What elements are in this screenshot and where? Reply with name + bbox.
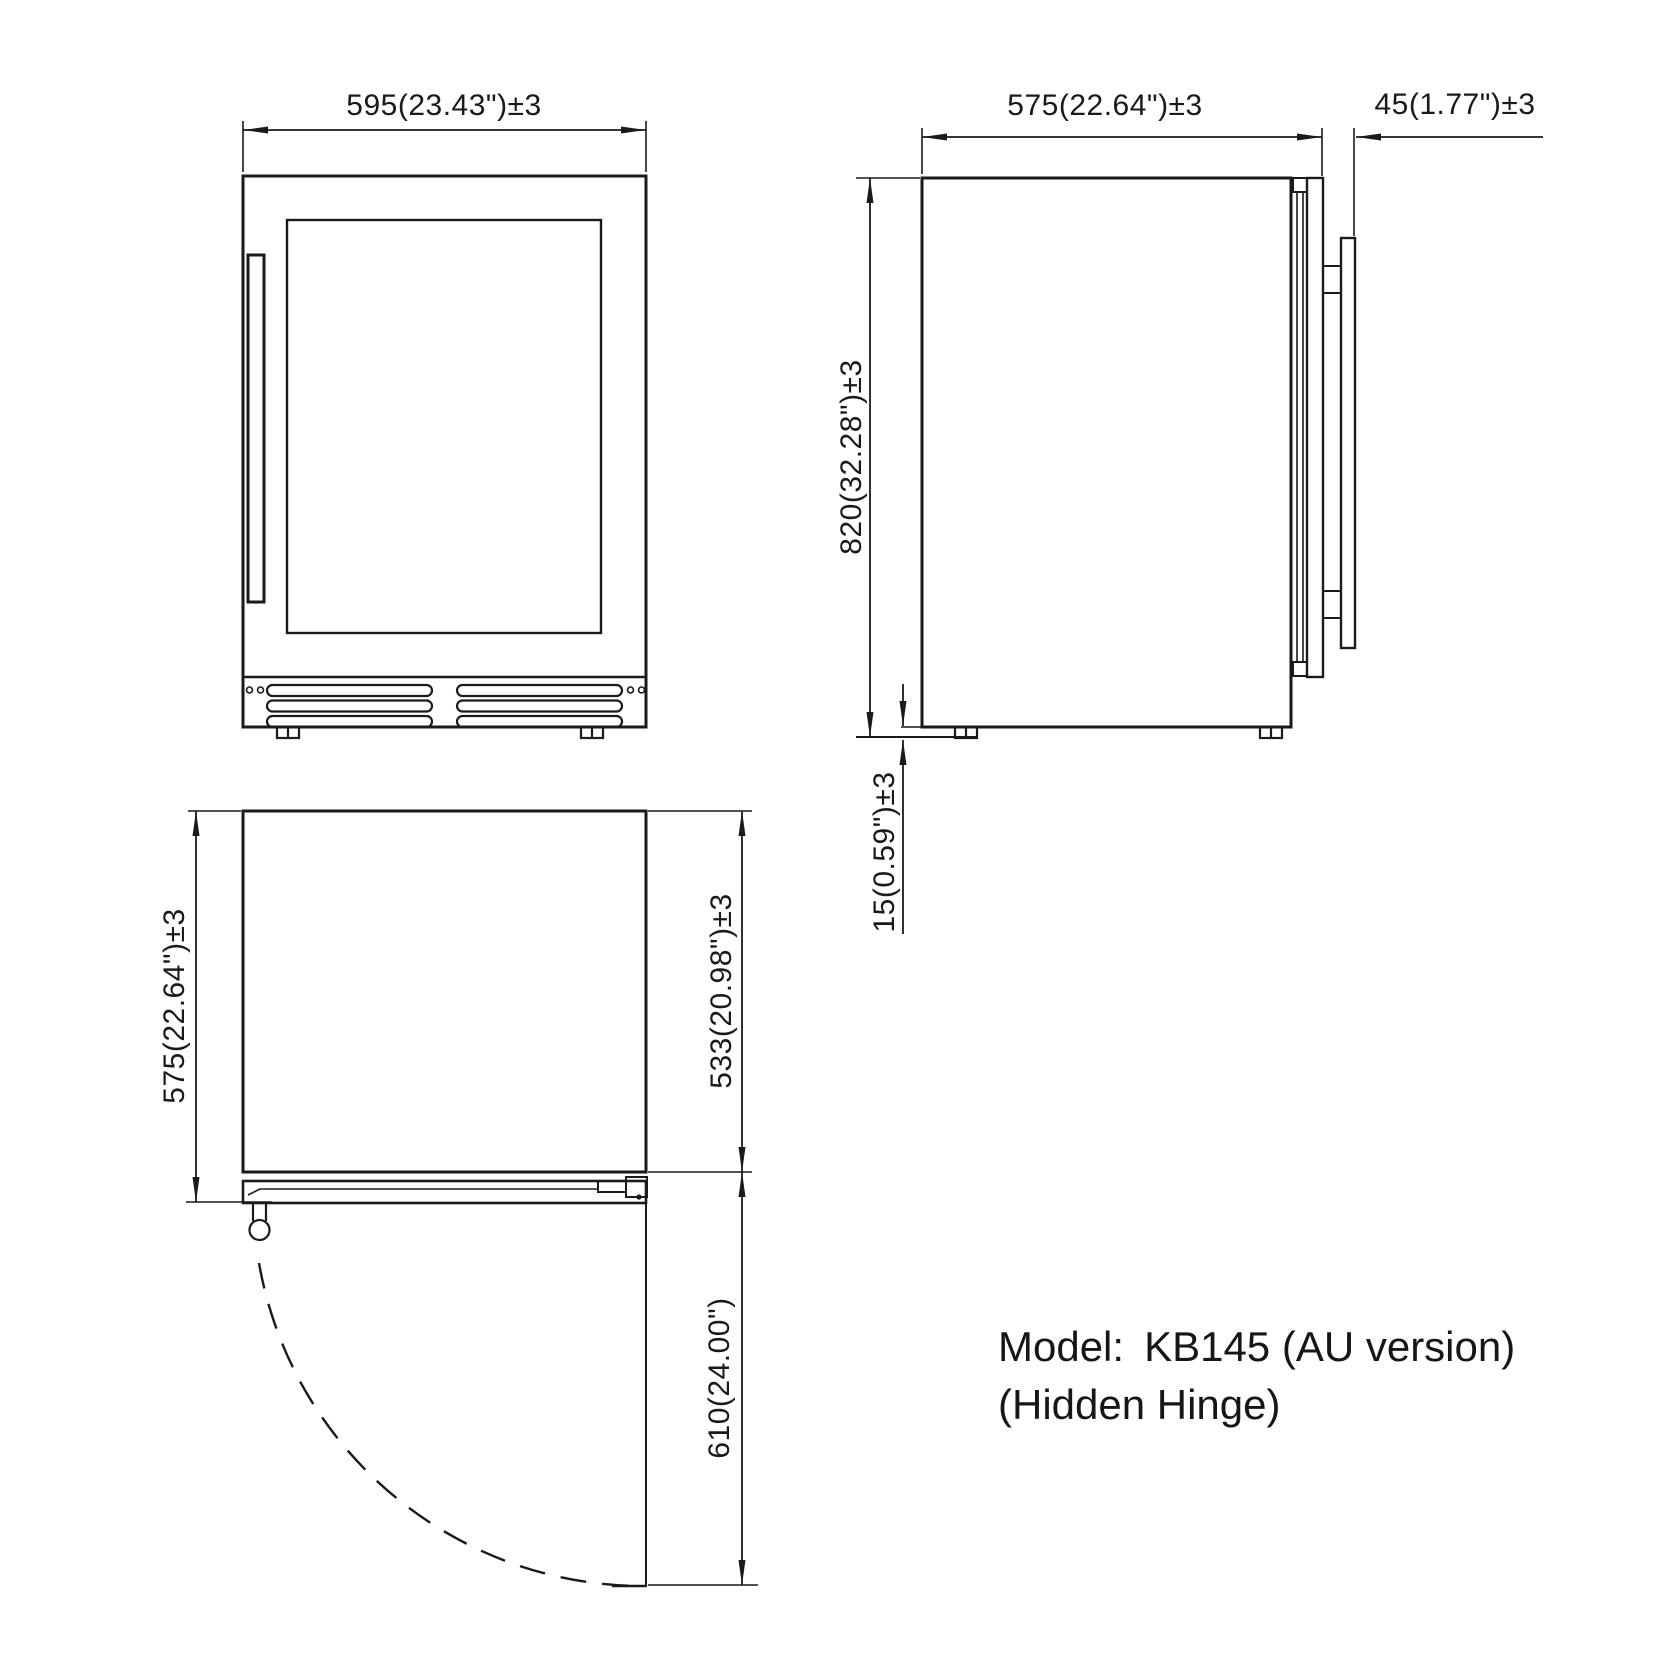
model-label: Model:	[998, 1323, 1124, 1370]
glass-door-panel	[287, 220, 601, 633]
door-top-outline	[243, 1181, 646, 1203]
side-door-thickness-dimension: 45(1.77")±3	[1374, 88, 1535, 122]
model-annotation: Model:KB145 (AU version) (Hidden Hinge)	[998, 1318, 1515, 1434]
vent-slats	[267, 685, 622, 727]
hidden-hinge-step	[598, 1181, 626, 1192]
side-leg-height-dimension: 15(0.59")±3	[868, 771, 902, 932]
model-note: (Hidden Hinge)	[998, 1376, 1515, 1434]
screw	[628, 687, 634, 693]
cabinet-top-outline	[243, 811, 646, 1172]
door-handle	[248, 255, 264, 602]
door-swing-arc	[259, 1263, 640, 1586]
top-cabinet-depth-dimension: 533(20.98")±3	[705, 893, 739, 1088]
door-face-groove-end	[248, 1189, 260, 1195]
handle-knob-top-view	[250, 1220, 270, 1240]
cabinet-front-outline	[243, 176, 646, 727]
door-gasket-cap-top	[1293, 178, 1307, 192]
hinge-arm-top	[1323, 266, 1341, 293]
front-view	[243, 121, 646, 738]
side-height-dimension: 820(32.28")±3	[835, 359, 869, 554]
top-depth-dimension: 575(22.64")±3	[158, 908, 192, 1103]
door-slab-side	[1307, 178, 1323, 677]
screw	[639, 687, 645, 693]
top-view	[186, 811, 758, 1587]
door-gasket-cap-bottom	[1293, 662, 1307, 676]
leveling-feet	[955, 727, 1282, 738]
screw	[247, 687, 253, 693]
front-width-dimension: 595(23.43")±3	[346, 89, 541, 123]
technical-drawing-page: 595(23.43")±3 575(22.64")±3 45(1.77")±3 …	[0, 0, 1676, 1676]
screw	[258, 687, 264, 693]
cabinet-side-outline	[922, 178, 1291, 727]
top-door-swing-dimension: 610(24.00")	[703, 1297, 737, 1458]
hinge-pin	[636, 1194, 641, 1199]
hinge-cover-plate	[1341, 238, 1355, 648]
leveling-feet	[277, 727, 603, 738]
side-depth-dimension: 575(22.64")±3	[1007, 89, 1202, 123]
model-value: KB145 (AU version)	[1144, 1323, 1515, 1370]
hinge-arm-bottom	[1323, 591, 1341, 618]
side-view	[856, 128, 1543, 934]
